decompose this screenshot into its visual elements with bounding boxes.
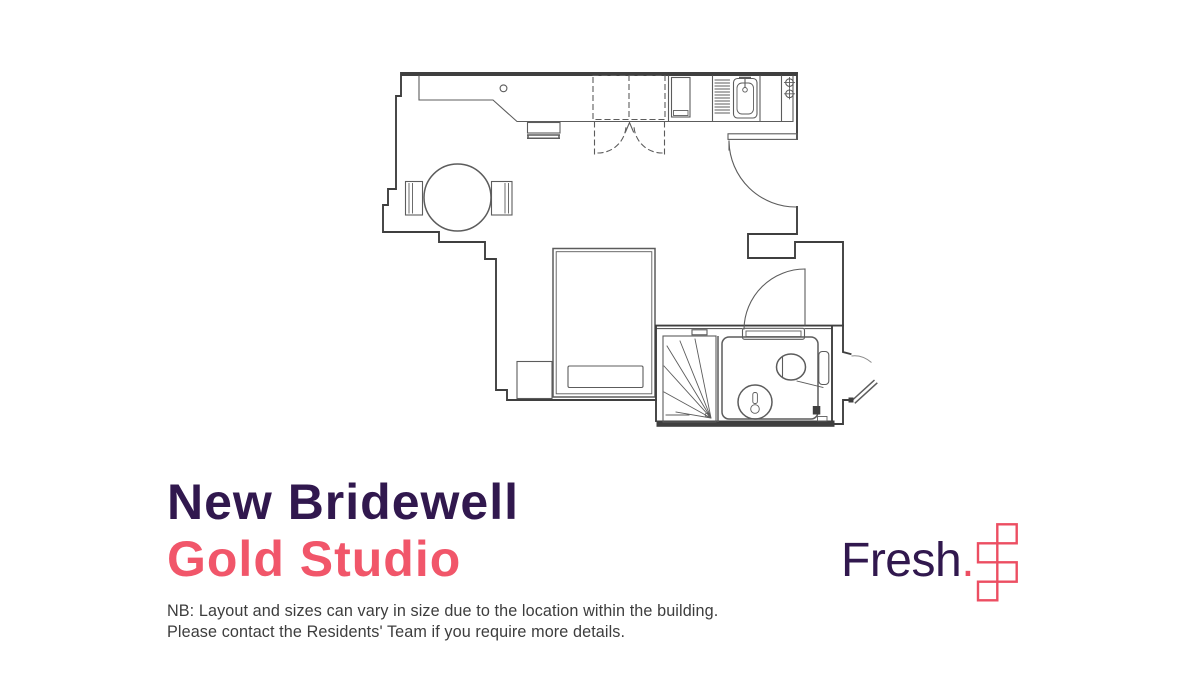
disclaimer-note: NB: Layout and sizes can vary in size du… — [167, 601, 807, 643]
floor-plan — [360, 50, 900, 450]
bathroom-door — [744, 269, 805, 329]
building-name: New Bridewell — [167, 474, 807, 530]
toilet-icon — [777, 352, 829, 388]
tap-icon — [739, 78, 751, 93]
dining-chair-right — [492, 182, 513, 216]
counter-knob — [500, 85, 507, 92]
shower-spray — [664, 339, 711, 418]
door-hardware — [813, 406, 827, 421]
dining-chair-left — [406, 182, 423, 216]
dining-table — [424, 164, 491, 231]
wardrobe — [593, 76, 665, 155]
drainer-icon — [715, 80, 730, 113]
stool — [527, 123, 560, 139]
fresh-wordmark: Fresh. — [841, 537, 974, 585]
external-door — [849, 356, 878, 404]
cistern — [819, 352, 829, 385]
pillow — [568, 366, 643, 388]
shower-head — [692, 330, 707, 335]
fresh-wordmark-dot: . — [961, 534, 974, 587]
fresh-wordmark-text: Fresh — [841, 534, 961, 587]
fridge-icon — [672, 78, 691, 118]
floorplan-headline: New Bridewell Gold Studio NB: Layout and… — [167, 474, 807, 643]
sink-icon — [734, 78, 758, 119]
entrance-door — [728, 134, 797, 207]
fresh-logo-mark-icon — [976, 521, 1020, 603]
shower — [663, 330, 718, 422]
disclaimer-line-2: Please contact the Residents' Team if yo… — [167, 623, 625, 641]
double-bed — [553, 249, 655, 398]
bedside-table — [517, 362, 552, 399]
unit-name: Gold Studio — [167, 531, 807, 587]
basin-icon — [738, 385, 772, 419]
disclaimer-line-1: NB: Layout and sizes can vary in size du… — [167, 602, 718, 620]
